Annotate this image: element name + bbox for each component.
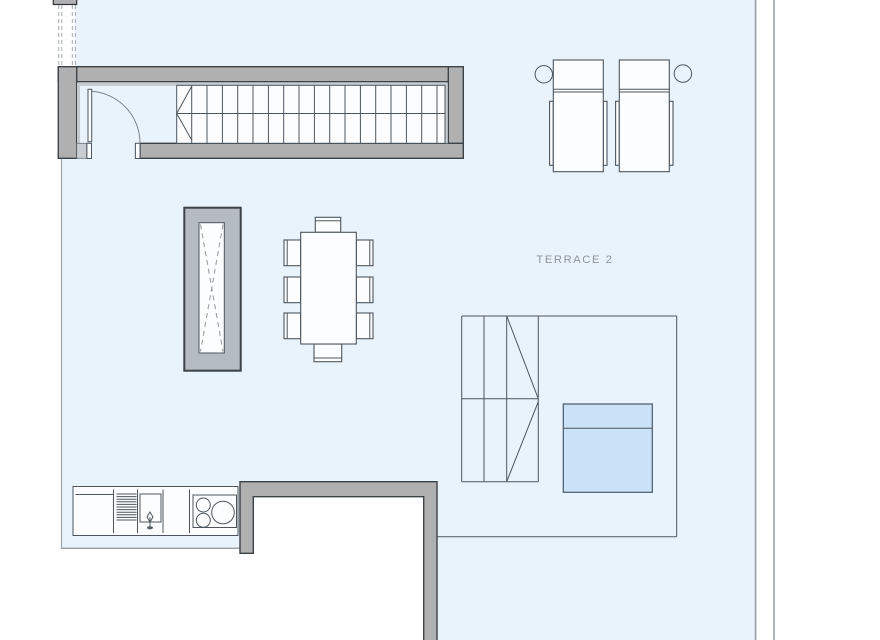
floor-plan-canvas: TERRACE 2	[0, 0, 880, 640]
chair-left-2	[284, 277, 301, 303]
staircase-up	[177, 85, 445, 143]
floor-plan-page: TERRACE 2	[0, 0, 880, 640]
door-jamb-right	[135, 143, 140, 158]
chair-right-3	[356, 313, 373, 339]
upper-wall-projection	[53, 0, 76, 67]
dining-table	[301, 232, 357, 344]
plunge-pool	[563, 404, 652, 492]
chair-right-2	[356, 277, 373, 303]
chair-right-1	[356, 240, 373, 266]
kitchen-counter	[73, 487, 238, 536]
door-leaf	[88, 89, 92, 141]
lounger-left-arm-b	[603, 101, 607, 165]
cooktop	[193, 495, 237, 528]
door-jamb-left	[87, 143, 92, 158]
pool-basin	[563, 404, 652, 492]
void-parapet-wall	[240, 482, 437, 640]
stair-tread-area	[177, 85, 445, 143]
lounger-right-arm-b	[669, 101, 673, 165]
door-jamb-wall-piece	[77, 143, 87, 158]
stair-wall-left	[58, 67, 76, 159]
projection-dashed-lines	[59, 5, 76, 67]
stair-wall-bottom	[140, 143, 463, 158]
lounger-left-arm-a	[550, 101, 554, 165]
chair-bottom	[314, 344, 342, 362]
lounger-right-arm-a	[616, 101, 620, 165]
chair-left-3	[284, 313, 301, 339]
skylight-shaft	[184, 208, 240, 371]
lounger-left-body	[553, 60, 603, 172]
wall-above-marker	[53, 0, 76, 5]
stair-wall-top	[58, 67, 463, 82]
lounger-right-body	[619, 60, 669, 172]
chair-left-1	[284, 240, 301, 266]
chair-top	[315, 217, 340, 232]
terrace-2-label: TERRACE 2	[536, 254, 613, 266]
